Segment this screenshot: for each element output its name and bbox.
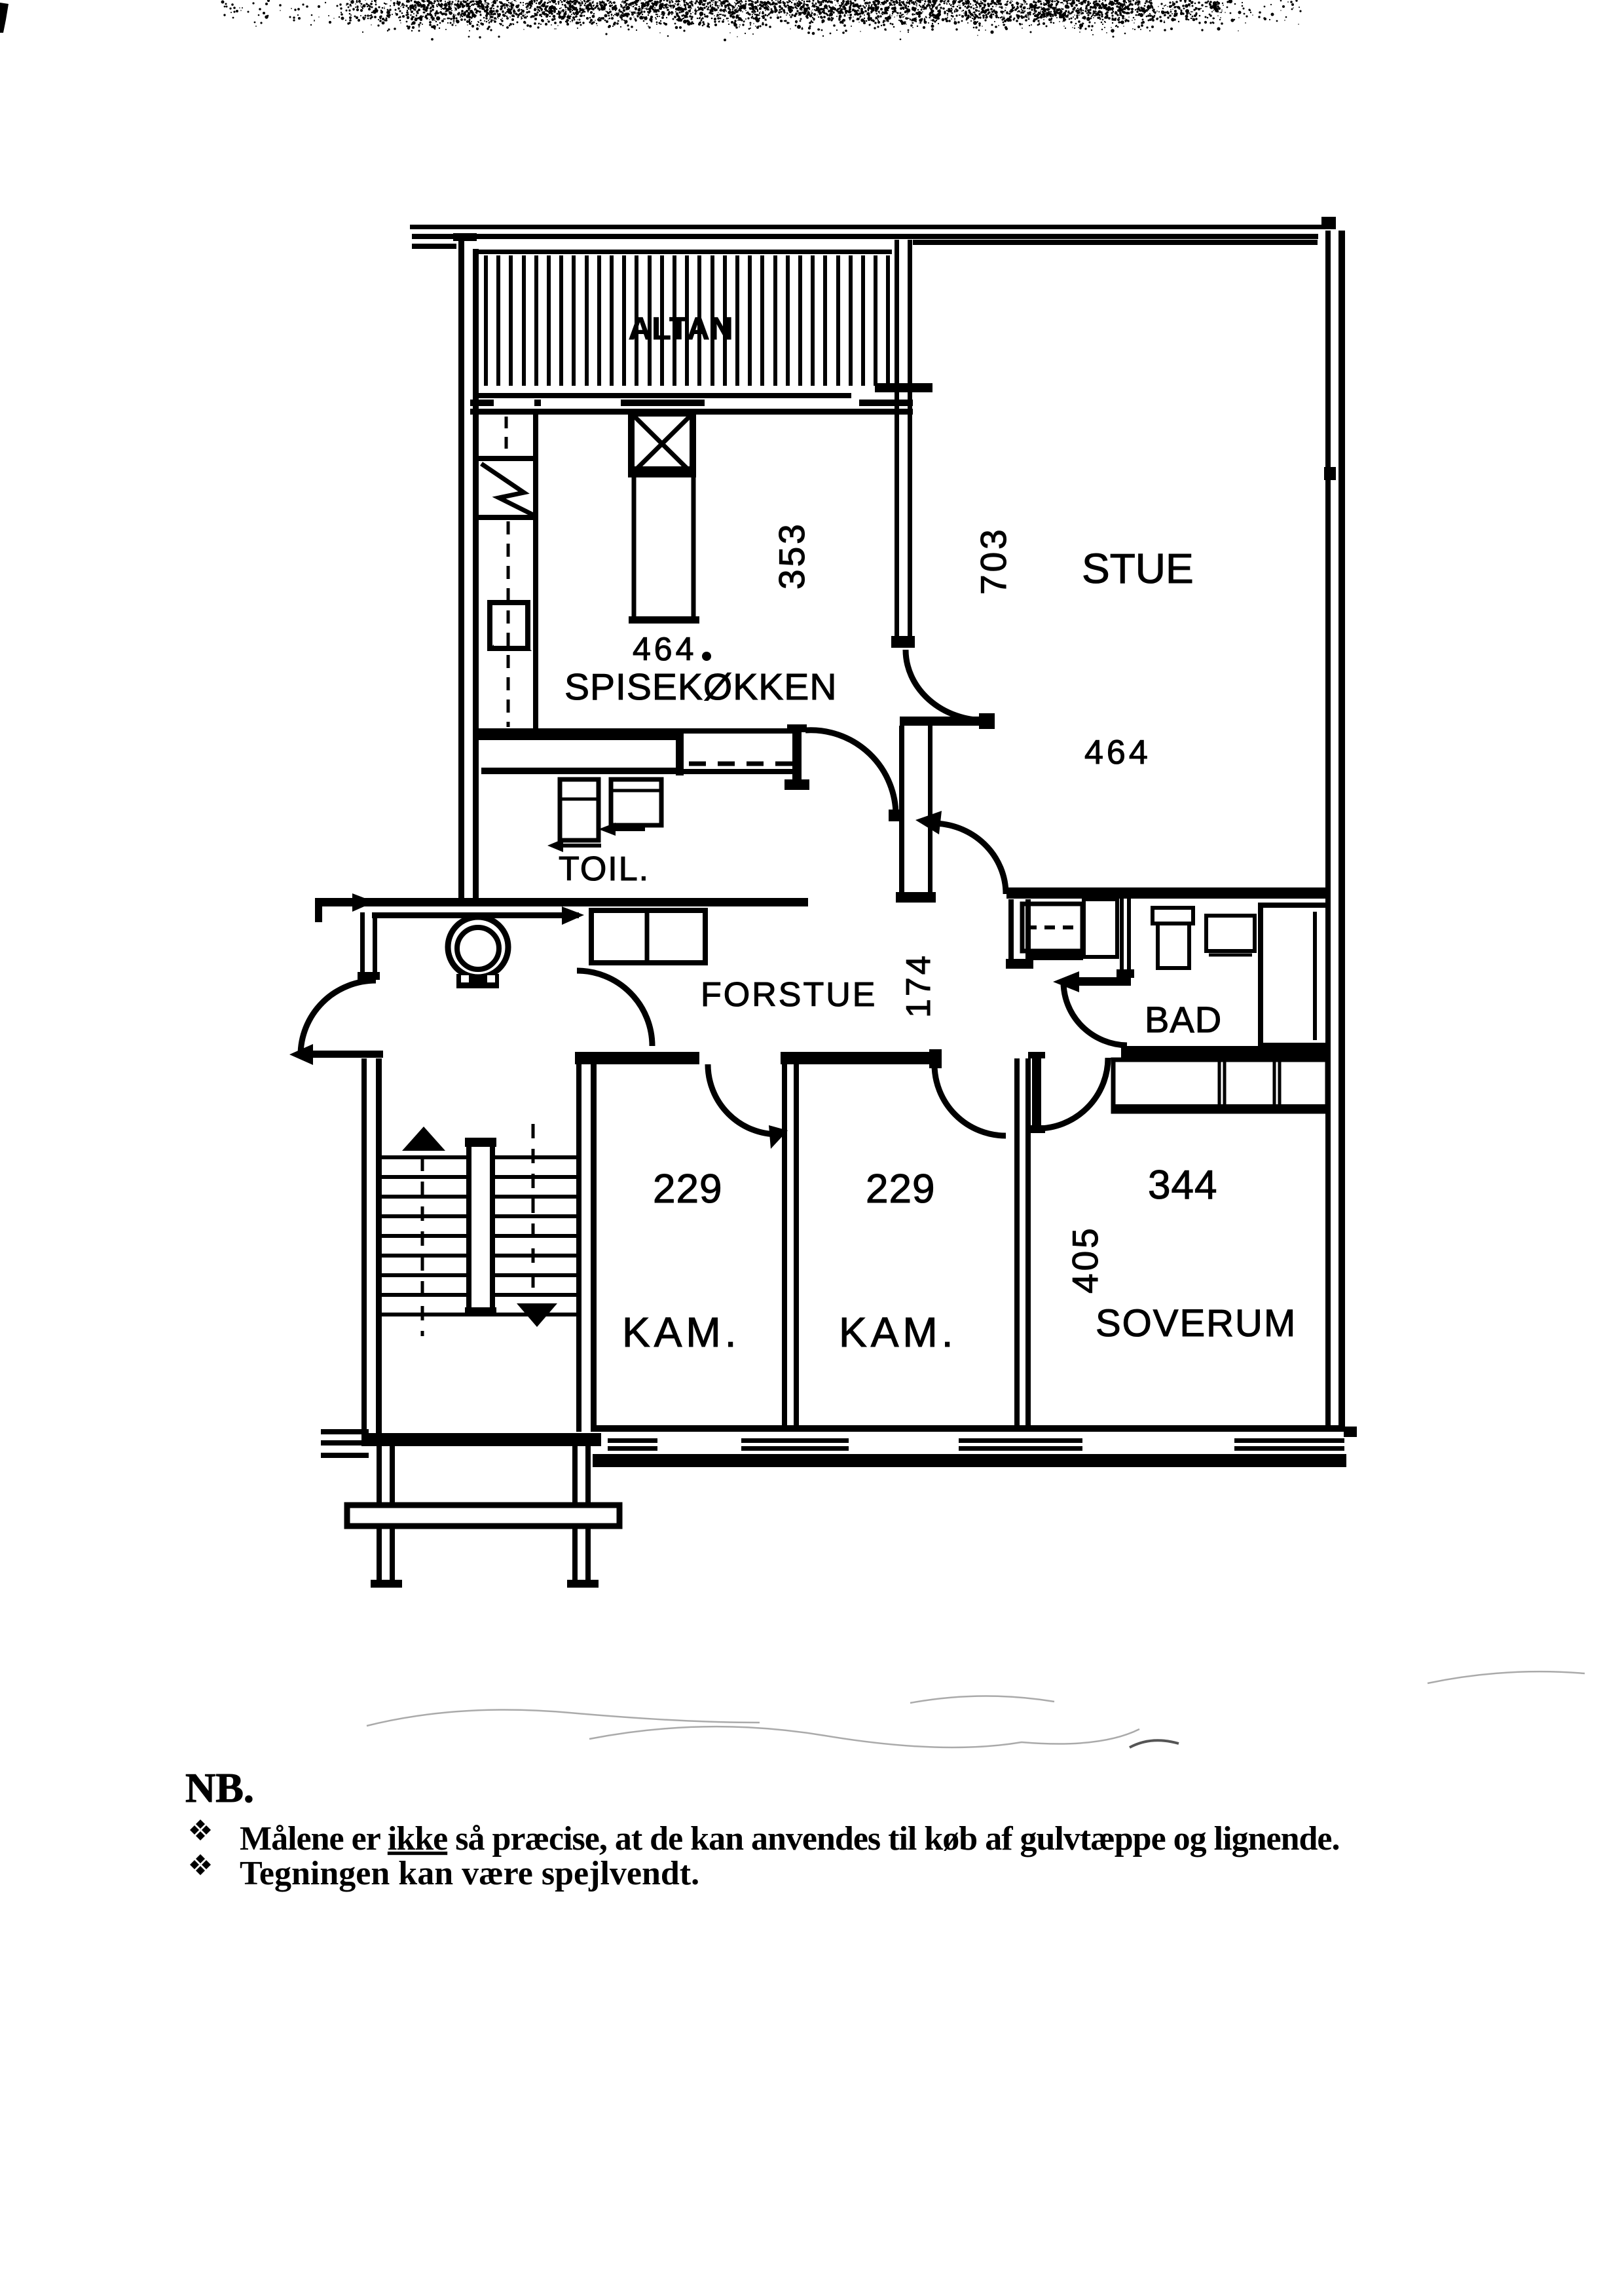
svg-text:Tegningen kan være spejlvendt.: Tegningen kan være spejlvendt. bbox=[240, 1855, 699, 1892]
svg-text:344: 344 bbox=[1148, 1163, 1217, 1208]
svg-text:174: 174 bbox=[900, 953, 938, 1018]
svg-text:BAD: BAD bbox=[1145, 999, 1222, 1040]
svg-text:405: 405 bbox=[1065, 1225, 1105, 1294]
svg-text:KAM.: KAM. bbox=[622, 1309, 740, 1356]
svg-text:FORSTUE: FORSTUE bbox=[701, 976, 877, 1014]
svg-text:SPISEKØKKEN: SPISEKØKKEN bbox=[564, 666, 838, 708]
svg-text:NB.: NB. bbox=[185, 1764, 254, 1811]
svg-text:464: 464 bbox=[633, 631, 697, 667]
svg-text:TOIL.: TOIL. bbox=[559, 850, 650, 888]
svg-text:SOVERUM: SOVERUM bbox=[1096, 1302, 1297, 1345]
svg-text:464: 464 bbox=[1084, 734, 1151, 772]
svg-text:703: 703 bbox=[973, 527, 1014, 595]
svg-text:229: 229 bbox=[866, 1166, 935, 1212]
svg-text:353: 353 bbox=[771, 521, 812, 589]
svg-text:KAM.: KAM. bbox=[839, 1309, 957, 1356]
svg-text:229: 229 bbox=[653, 1166, 722, 1212]
svg-text:ALTAN: ALTAN bbox=[629, 312, 734, 346]
svg-text:STUE: STUE bbox=[1082, 545, 1194, 592]
svg-text:Målene er ikke så præcise, at: Målene er ikke så præcise, at de kan anv… bbox=[240, 1820, 1340, 1857]
